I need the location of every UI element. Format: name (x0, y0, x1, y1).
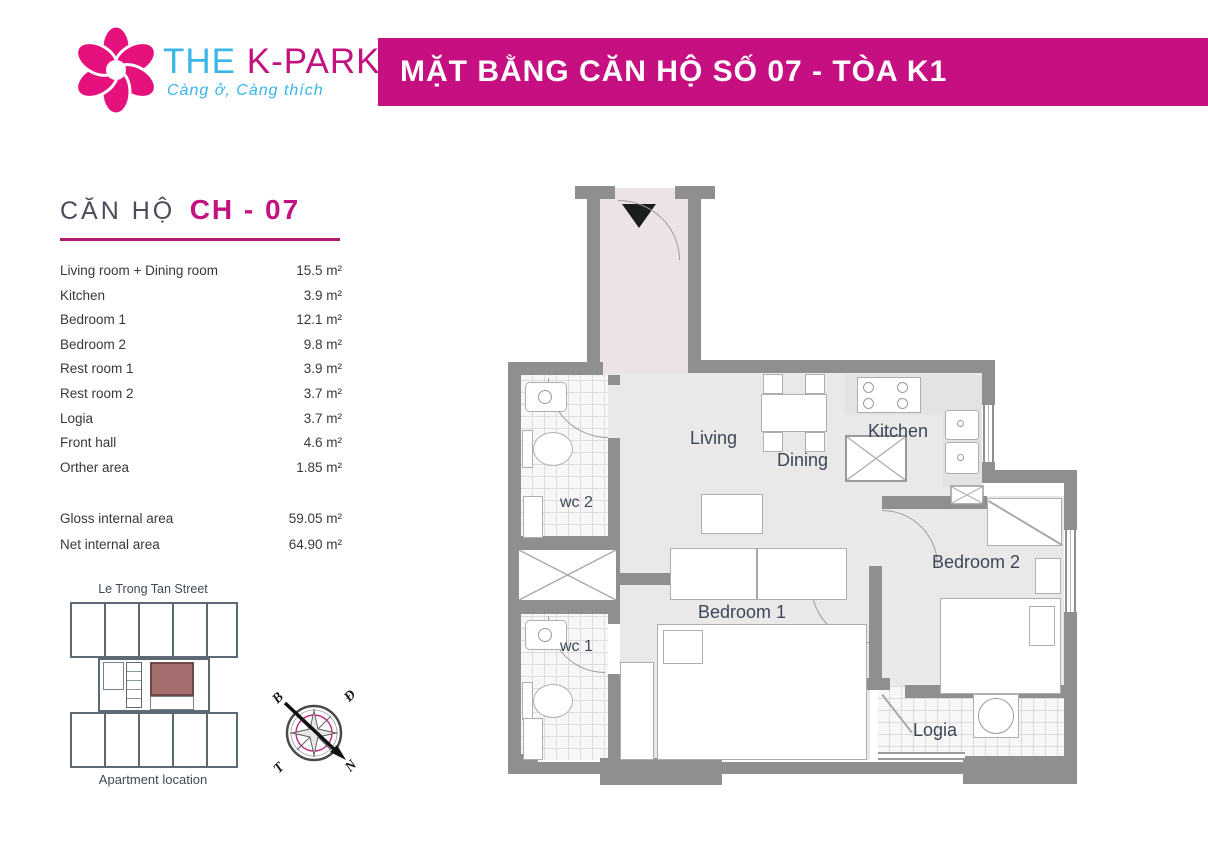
ac-unit (950, 485, 984, 505)
dining-chair (805, 432, 825, 452)
elevator-bank (126, 662, 142, 708)
compass-west-label: T (271, 759, 289, 777)
compass-north-label: B (269, 690, 287, 708)
wall-segment (688, 192, 701, 373)
unit-divider (104, 604, 106, 656)
wall-segment (869, 566, 882, 688)
dining-table (761, 394, 827, 432)
unit-divider (104, 714, 106, 766)
row-value: 12.1 m² (296, 308, 342, 333)
wall-segment (982, 373, 995, 405)
row-label: Bedroom 1 (60, 308, 126, 333)
pillow (1029, 606, 1055, 646)
room-label-bedroom1: Bedroom 1 (698, 602, 786, 623)
logo-tagline: Càng ở, Càng thích (167, 82, 324, 100)
row-label: Rest room 2 (60, 382, 134, 407)
table-row: Living room + Dining room 15.5 m² (60, 259, 342, 284)
compass-south-label: N (342, 757, 361, 776)
highlighted-apartment (150, 662, 194, 696)
row-label: Bedroom 2 (60, 333, 126, 358)
summary-row: Gloss internal area 59.05 m² (60, 506, 342, 532)
table-row: Rest room 1 3.9 m² (60, 357, 342, 382)
vent-box (523, 718, 543, 760)
room-label-logia: Logia (913, 720, 957, 741)
wall-segment (608, 438, 620, 538)
row-value: 9.8 m² (304, 333, 342, 358)
compass-rose-icon: B Đ T N (266, 686, 362, 782)
building-core (98, 658, 210, 712)
room-label-bedroom2: Bedroom 2 (932, 552, 1020, 573)
logia-rail-window (878, 752, 965, 760)
kpark-flower-logo-icon (70, 22, 162, 114)
dining-chair (763, 374, 783, 394)
table-row: Logia 3.7 m² (60, 407, 342, 432)
nightstand (620, 662, 654, 760)
unit-divider (138, 714, 140, 766)
row-value: 59.05 m² (289, 506, 342, 532)
wall-segment (608, 674, 620, 760)
heading-underline (60, 238, 340, 241)
row-value: 3.7 m² (304, 382, 342, 407)
sofa-cushion-line (757, 549, 759, 599)
row-label: Net internal area (60, 532, 160, 558)
row-value: 64.90 m² (289, 532, 342, 558)
logo-kpark: K-PARK (247, 42, 381, 81)
wall-segment (701, 360, 995, 373)
table-row: Bedroom 2 9.8 m² (60, 333, 342, 358)
row-label: Orther area (60, 456, 129, 481)
vent-box (523, 496, 543, 538)
wall-segment (508, 362, 603, 375)
kitchen-duct-shaft (845, 435, 907, 482)
stove-burner (897, 382, 908, 393)
sink-drain (957, 420, 964, 427)
row-label: Rest room 1 (60, 357, 134, 382)
core-room (150, 696, 194, 710)
pillow (663, 630, 703, 664)
unit-heading-code: CH - 07 (190, 194, 300, 225)
unit-heading-prefix: CĂN HỘ (60, 197, 175, 225)
dining-chair (763, 432, 783, 452)
page-title: MẶT BẰNG CĂN HỘ SỐ 07 - TÒA K1 (378, 38, 1208, 106)
room-label-kitchen: Kitchen (868, 421, 928, 442)
unit-divider (206, 714, 208, 766)
logo-wordmark: THE K-PARK (163, 42, 380, 82)
bedroom2-window (1065, 530, 1076, 612)
compass-east-label: Đ (341, 687, 359, 705)
row-label: Gloss internal area (60, 506, 173, 532)
wall-segment (982, 470, 1077, 483)
table-row: Bedroom 1 12.1 m² (60, 308, 342, 333)
toilet-tank (522, 682, 533, 720)
coffee-table (701, 494, 763, 534)
room-label-dining: Dining (777, 450, 828, 471)
stove-burner (863, 382, 874, 393)
row-value: 3.7 m² (304, 407, 342, 432)
map-caption: Apartment location (60, 772, 246, 787)
table-row: Kitchen 3.9 m² (60, 284, 342, 309)
dining-chair (805, 374, 825, 394)
room-label-wc2: wc 2 (560, 494, 593, 512)
unit-divider (172, 604, 174, 656)
table-row: Front hall 4.6 m² (60, 431, 342, 456)
row-label: Logia (60, 407, 93, 432)
duct-shaft (515, 546, 620, 604)
row-label: Living room + Dining room (60, 259, 218, 284)
unit-divider (172, 714, 174, 766)
sink-basin (538, 390, 552, 404)
building-top-wing (70, 602, 238, 658)
area-summary: Gloss internal area 59.05 m² Net interna… (60, 506, 342, 557)
table-row: Rest room 2 3.7 m² (60, 382, 342, 407)
title-banner: MẶT BẰNG CĂN HỘ SỐ 07 - TÒA K1 (378, 38, 1208, 106)
wall-segment (1064, 483, 1077, 530)
wall-segment (608, 614, 620, 624)
area-table: Living room + Dining room 15.5 m² Kitche… (60, 259, 342, 480)
wall-pier (600, 758, 722, 785)
stove-burner (863, 398, 874, 409)
summary-row: Net internal area 64.90 m² (60, 532, 342, 558)
sink-drain (957, 454, 964, 461)
row-value: 4.6 m² (304, 431, 342, 456)
wall-segment (608, 375, 620, 385)
building-bottom-wing (70, 712, 238, 768)
unit-divider (206, 604, 208, 656)
wall-segment (508, 762, 977, 774)
toilet (533, 432, 573, 466)
wall-pier (963, 756, 1077, 784)
kitchen-window (983, 405, 994, 462)
unit-divider (138, 604, 140, 656)
street-label: Le Trong Tan Street (60, 582, 246, 596)
row-value: 15.5 m² (296, 259, 342, 284)
room-label-living: Living (690, 428, 737, 449)
washing-machine-drum (978, 698, 1014, 734)
stove-burner (897, 398, 908, 409)
sink-basin (538, 628, 552, 642)
row-value: 1.85 m² (296, 456, 342, 481)
page: THE K-PARK Càng ở, Càng thích MẶT BẰNG C… (0, 0, 1208, 842)
wall-segment (587, 192, 600, 375)
floor-plan: Living Dining Kitchen wc 2 wc 1 Bedroom … (505, 178, 1107, 796)
core-room (103, 662, 124, 690)
row-value: 3.9 m² (304, 284, 342, 309)
logo-the: THE (163, 42, 236, 81)
row-label: Kitchen (60, 284, 105, 309)
table-row: Orther area 1.85 m² (60, 456, 342, 481)
row-value: 3.9 m² (304, 357, 342, 382)
nightstand (1035, 558, 1061, 594)
unit-heading: CĂN HỘ CH - 07 (60, 194, 300, 226)
toilet (533, 684, 573, 718)
room-label-wc1: wc 1 (560, 638, 593, 656)
toilet-tank (522, 430, 533, 468)
row-label: Front hall (60, 431, 116, 456)
building-overview (68, 600, 243, 770)
sofa (670, 548, 847, 600)
